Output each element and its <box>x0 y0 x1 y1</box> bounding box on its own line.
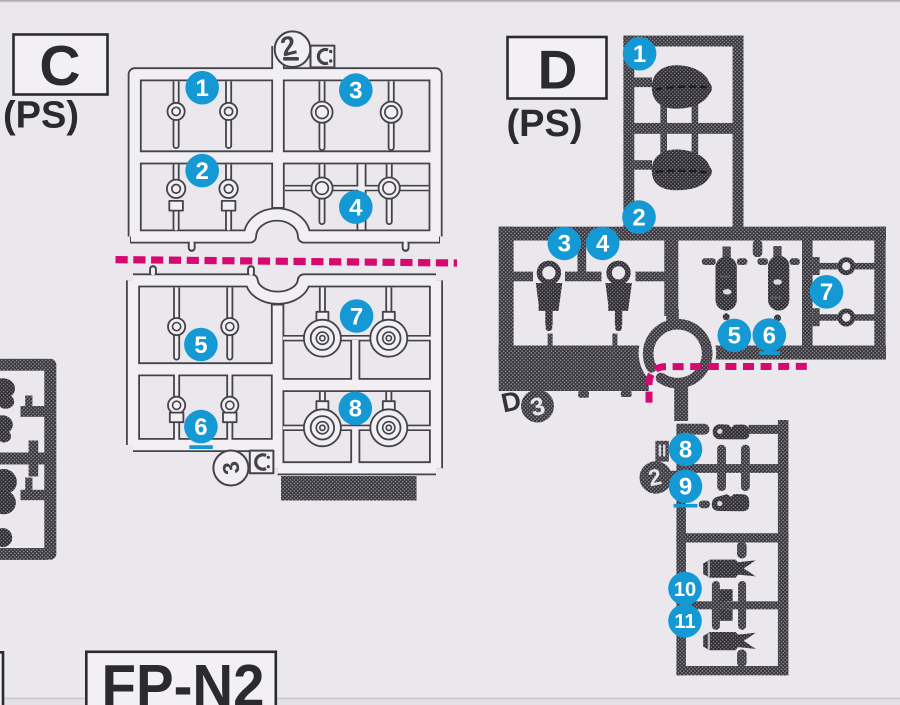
svg-text:10: 10 <box>674 579 696 601</box>
svg-text:4: 4 <box>596 231 610 258</box>
svg-text:(PS): (PS) <box>507 103 583 145</box>
svg-text:7: 7 <box>820 279 833 306</box>
svg-text:(PS): (PS) <box>3 95 79 137</box>
svg-text:4: 4 <box>349 194 363 221</box>
svg-text:8: 8 <box>679 437 692 464</box>
svg-text:FP-N2: FP-N2 <box>102 653 265 705</box>
svg-text:1: 1 <box>633 41 646 68</box>
svg-text:11: 11 <box>674 611 695 633</box>
svg-text:3: 3 <box>349 77 362 104</box>
svg-text:8: 8 <box>349 396 362 423</box>
svg-text:6: 6 <box>194 414 207 441</box>
svg-text:1: 1 <box>196 75 209 102</box>
svg-text:5: 5 <box>194 332 207 359</box>
svg-text:C: C <box>39 34 80 98</box>
svg-text:5: 5 <box>728 323 741 350</box>
svg-text:2: 2 <box>196 158 209 185</box>
svg-text:D: D <box>538 39 578 101</box>
svg-text:7: 7 <box>350 303 363 330</box>
svg-text:2: 2 <box>632 204 645 231</box>
svg-text:6: 6 <box>763 322 776 349</box>
svg-text:3: 3 <box>558 231 571 258</box>
svg-text:9: 9 <box>679 474 692 501</box>
